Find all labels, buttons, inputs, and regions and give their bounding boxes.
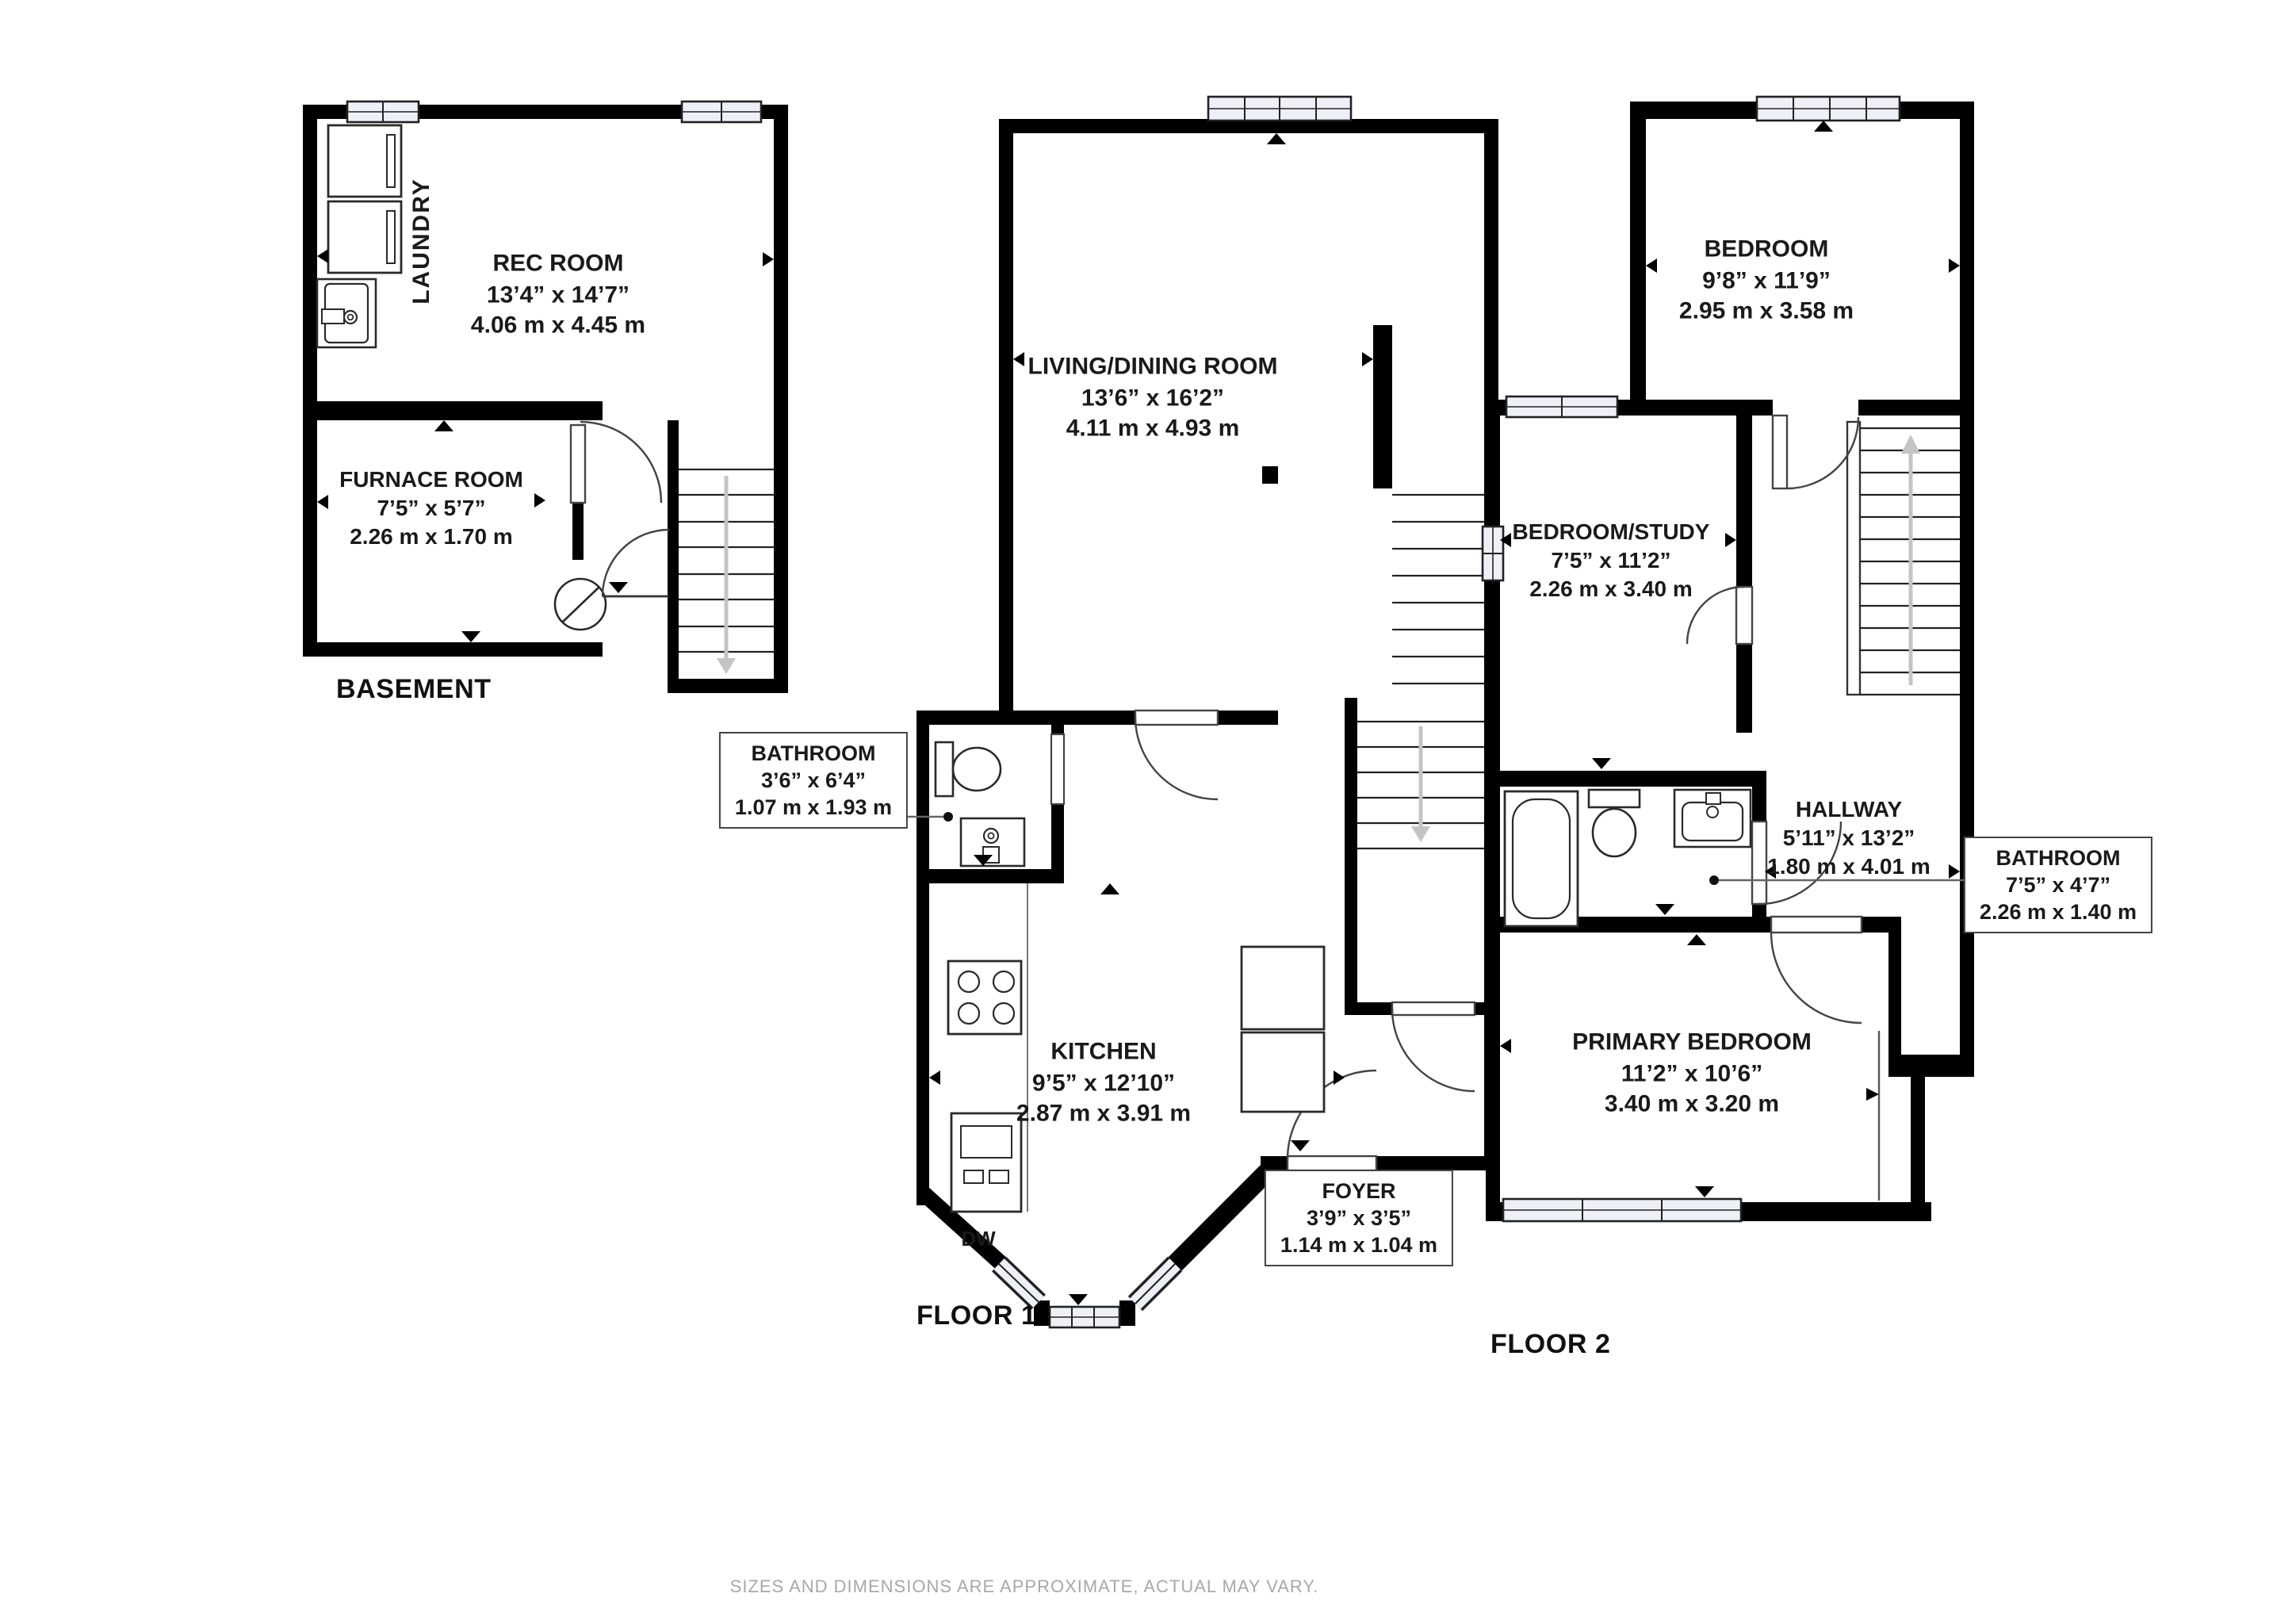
stairs-down [1357,722,1484,848]
toilet-icon [936,742,1001,796]
room-label-kitchen: KITCHEN 9’5” x 12’10” 2.87 m x 3.91 m [1016,1037,1191,1130]
room-label-primary-bedroom: PRIMARY BEDROOM 11’2” x 10’6” 3.40 m x 3… [1572,1028,1812,1120]
room-name: LIVING/DINING ROOM [1028,352,1278,383]
room-label-bedroom: BEDROOM 9’8” x 11’9” 2.95 m x 3.58 m [1679,235,1854,327]
room-imperial: 7’5” x 4’7” [1980,871,2137,898]
dishwasher-icon [951,1113,1021,1212]
room-metric: 1.07 m x 1.93 m [735,794,892,821]
room-name: FOYER [1280,1178,1437,1205]
label-box-bathroom-floor1: BATHROOM 3’6” x 6’4” 1.07 m x 1.93 m [719,732,908,829]
label-box-bathroom-floor2: BATHROOM 7’5” x 4’7” 2.26 m x 1.40 m [1964,837,2152,933]
stair-stringer [1847,422,1860,695]
room-metric: 2.26 m x 1.40 m [1980,898,2137,925]
refrigerator-icon [1242,947,1324,1112]
room-imperial: 7’5” x 11’2” [1513,546,1710,574]
room-name: BEDROOM/STUDY [1513,517,1710,546]
floor2-title: FLOOR 2 [1490,1329,1611,1361]
floorplan-canvas: LAUNDRY REC ROOM 13’4” x 14’7” 4.06 m x … [0,0,2296,1624]
dishwasher-label: DW [961,1227,995,1251]
room-metric: 2.87 m x 3.91 m [1016,1099,1191,1130]
room-name: FURNACE ROOM [339,465,523,493]
room-label-rec-room: REC ROOM 13’4” x 14’7” 4.06 m x 4.45 m [471,249,645,342]
room-metric: 4.06 m x 4.45 m [471,311,645,342]
room-imperial: 9’8” x 11’9” [1679,266,1854,297]
washer-icon [328,125,401,197]
room-metric: 1.80 m x 4.01 m [1767,852,1931,880]
room-label-bedroom-study: BEDROOM/STUDY 7’5” x 11’2” 2.26 m x 3.40… [1513,517,1710,603]
basement-plan [303,101,788,693]
room-metric: 2.26 m x 1.70 m [339,522,523,550]
stairs-down [679,469,774,674]
room-imperial: 7’5” x 5’7” [339,493,523,522]
room-label-furnace-room: FURNACE ROOM 7’5” x 5’7” 2.26 m x 1.70 m [339,465,523,550]
room-metric: 2.95 m x 3.58 m [1679,297,1854,327]
label-box-foyer: FOYER 3’9” x 3’5” 1.14 m x 1.04 m [1265,1170,1453,1266]
floorplan-drawing [0,0,2296,1624]
window [1208,97,1351,121]
laundry-label: LAUNDRY [408,178,435,304]
disclaimer-text: SIZES AND DIMENSIONS ARE APPROXIMATE, AC… [730,1578,1319,1597]
bay-wall-right [1175,1172,1267,1264]
room-metric: 3.40 m x 3.20 m [1572,1090,1812,1120]
stairs-up [1392,495,1484,684]
room-label-living-dining: LIVING/DINING ROOM 13’6” x 16’2” 4.11 m … [1028,352,1278,445]
room-imperial: 3’6” x 6’4” [735,767,892,794]
floor1-title: FLOOR 1 [916,1300,1037,1332]
room-imperial: 3’9” x 3’5” [1280,1205,1437,1231]
room-name: HALLWAY [1767,795,1931,823]
room-metric: 4.11 m x 4.93 m [1028,414,1278,445]
room-name: BATHROOM [1980,845,2137,871]
bathtub-icon [1505,791,1578,926]
sink-icon [1674,790,1751,847]
floor1-plan [905,97,1498,1327]
room-imperial: 5’11” x 13’2” [1767,823,1931,852]
room-metric: 1.14 m x 1.04 m [1280,1231,1437,1258]
room-name: PRIMARY BEDROOM [1572,1028,1812,1059]
room-imperial: 11’2” x 10’6” [1572,1059,1812,1090]
room-name: REC ROOM [471,249,645,280]
stove-icon [948,961,1021,1034]
room-imperial: 9’5” x 12’10” [1016,1068,1191,1099]
stairs-up [1847,422,1960,695]
dryer-icon [328,201,401,273]
room-metric: 2.26 m x 3.40 m [1513,574,1710,603]
laundry-sink-icon [317,279,376,347]
toilet-icon [1589,790,1640,856]
door-arc [571,422,669,596]
room-label-hallway: HALLWAY 5’11” x 13’2” 1.80 m x 4.01 m [1767,795,1931,880]
room-name: BATHROOM [735,740,892,767]
room-imperial: 13’4” x 14’7” [471,280,645,311]
room-imperial: 13’6” x 16’2” [1028,383,1278,414]
room-name: BEDROOM [1679,235,1854,266]
room-name: KITCHEN [1016,1037,1191,1068]
sink-icon [961,818,1024,866]
basement-title: BASEMENT [336,674,492,706]
water-heater-icon [555,579,606,630]
